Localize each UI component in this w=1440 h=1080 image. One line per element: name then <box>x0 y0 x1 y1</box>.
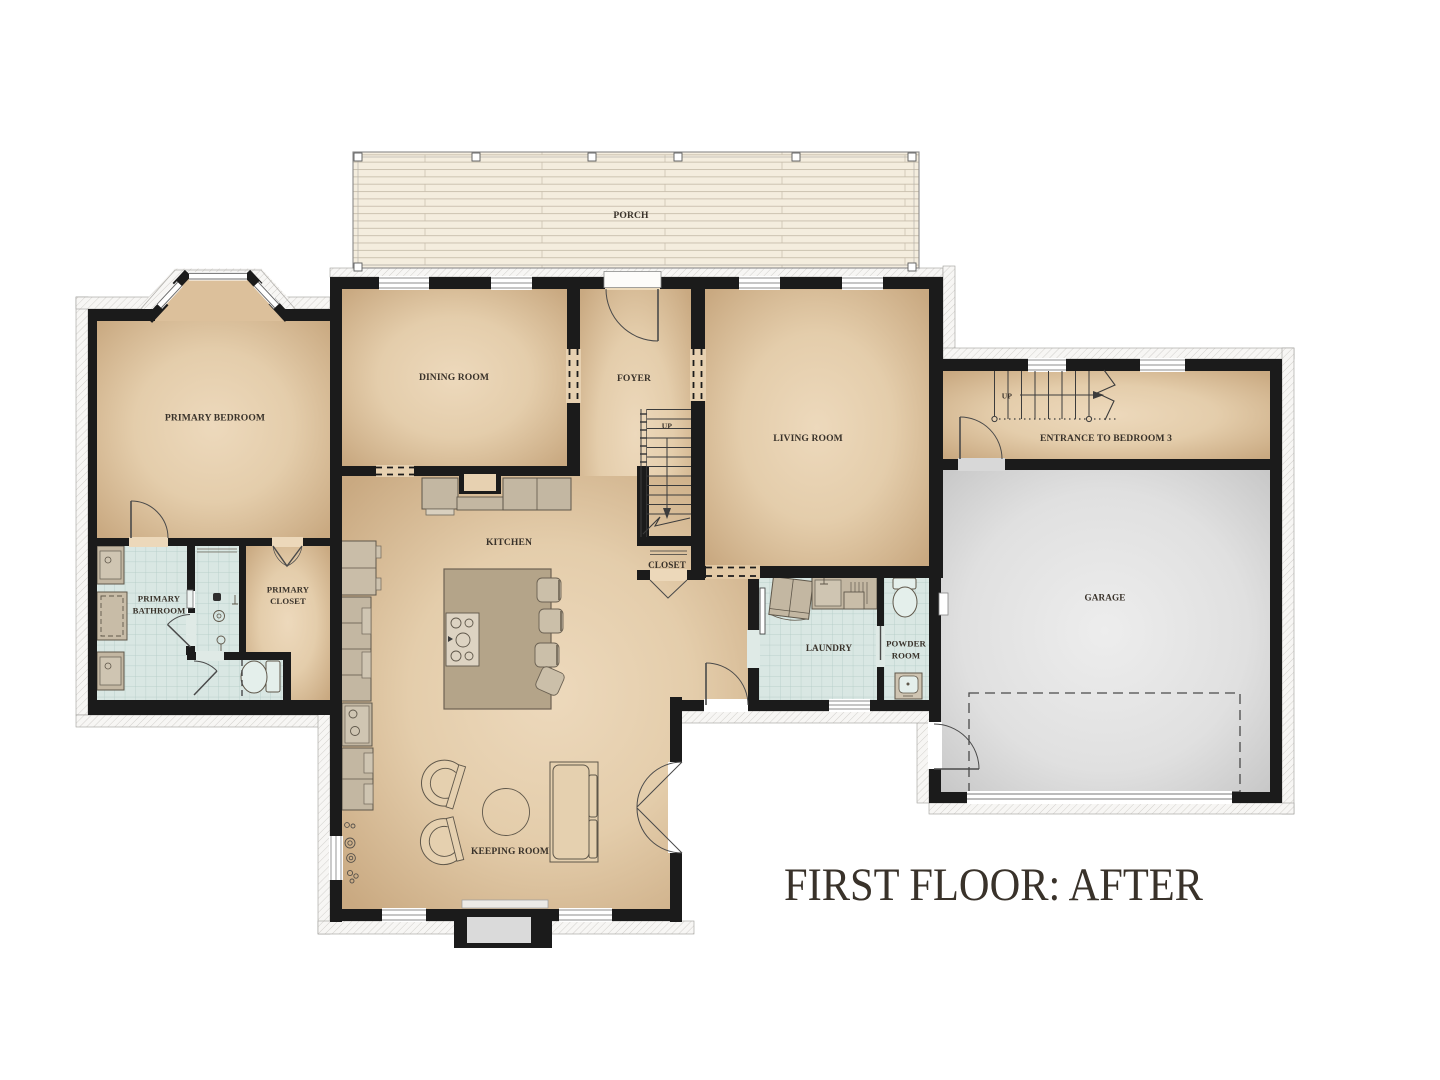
svg-text:LAUNDRY: LAUNDRY <box>806 643 853 653</box>
svg-text:BATHROOM: BATHROOM <box>133 606 186 616</box>
svg-text:UP: UP <box>1002 392 1013 401</box>
svg-text:KITCHEN: KITCHEN <box>486 537 532 548</box>
svg-text:PRIMARY: PRIMARY <box>138 594 181 604</box>
svg-text:FIRST FLOOR: AFTER: FIRST FLOOR: AFTER <box>784 860 1203 911</box>
svg-text:PORCH: PORCH <box>613 210 649 221</box>
svg-text:DINING ROOM: DINING ROOM <box>419 372 489 383</box>
svg-text:PRIMARY: PRIMARY <box>267 585 310 595</box>
svg-text:KEEPING ROOM: KEEPING ROOM <box>471 847 549 857</box>
svg-text:ROOM: ROOM <box>892 651 920 661</box>
svg-text:CLOSET: CLOSET <box>648 560 686 570</box>
svg-text:PRIMARY BEDROOM: PRIMARY BEDROOM <box>165 413 265 424</box>
svg-text:FOYER: FOYER <box>617 373 652 384</box>
svg-text:CLOSET: CLOSET <box>270 596 306 606</box>
svg-text:POWDER: POWDER <box>886 639 926 649</box>
svg-text:LIVING ROOM: LIVING ROOM <box>773 433 843 444</box>
svg-text:GARAGE: GARAGE <box>1085 593 1126 603</box>
svg-text:ENTRANCE TO BEDROOM 3: ENTRANCE TO BEDROOM 3 <box>1040 433 1172 444</box>
svg-text:UP: UP <box>662 422 673 431</box>
